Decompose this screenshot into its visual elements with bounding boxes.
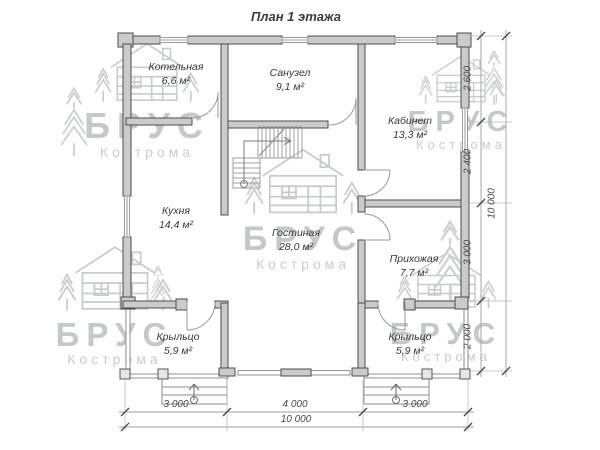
room-label-sanuzel: Санузел 9,1 м² bbox=[230, 67, 350, 95]
room-area: 5,9 м² bbox=[350, 345, 470, 359]
room-name: Кухня bbox=[116, 205, 236, 219]
room-area: 9,1 м² bbox=[230, 81, 350, 95]
dim-bottom-3000-left: 3 000 bbox=[146, 399, 206, 412]
room-area: 7,7 м² bbox=[354, 267, 474, 281]
room-name: Кабинет bbox=[350, 115, 470, 129]
room-name: Прихожая bbox=[354, 253, 474, 267]
room-label-prihozhaya: Прихожая 7,7 м² bbox=[354, 253, 474, 281]
dim-bottom-4000: 4 000 bbox=[265, 399, 325, 412]
dim-right-2400: 2 400 bbox=[463, 132, 476, 192]
room-name: Гостиная bbox=[236, 227, 356, 241]
room-name: Крыльцо bbox=[118, 331, 238, 345]
dim-right-3000: 3 000 bbox=[463, 223, 476, 283]
room-label-kabinet: Кабинет 13,3 м² bbox=[350, 115, 470, 143]
room-label-kryltso-left: Крыльцо 5,9 м² bbox=[118, 331, 238, 359]
room-area: 14,4 м² bbox=[116, 219, 236, 233]
room-label-kryltso-right: Крыльцо 5,9 м² bbox=[350, 331, 470, 359]
staircase bbox=[233, 127, 302, 188]
room-label-kuhnya: Кухня 14,4 м² bbox=[116, 205, 236, 233]
room-area: 5,9 м² bbox=[118, 345, 238, 359]
room-area: 6,6 м² bbox=[116, 75, 236, 89]
dim-right-2600: 2 600 bbox=[463, 49, 476, 109]
dim-right-total: 10 000 bbox=[487, 174, 500, 234]
room-area: 13,3 м² bbox=[350, 129, 470, 143]
floor-plan-page: БРУС Кострома БРУС Кострома БРУС Костром… bbox=[0, 0, 600, 450]
room-label-gostinaya: Гостиная 28,0 м² bbox=[236, 227, 356, 255]
room-label-kotelnaya: Котельная 6,6 м² bbox=[116, 61, 236, 89]
room-name: Котельная bbox=[116, 61, 236, 75]
room-name: Крыльцо bbox=[350, 331, 470, 345]
room-area: 28,0 м² bbox=[236, 241, 356, 255]
page-title: План 1 этажа bbox=[216, 9, 376, 24]
dim-bottom-3000-right: 3 000 bbox=[385, 399, 445, 412]
dim-right-2000: 2 000 bbox=[463, 307, 476, 367]
dim-bottom-total: 10 000 bbox=[266, 414, 326, 427]
room-name: Санузел bbox=[230, 67, 350, 81]
